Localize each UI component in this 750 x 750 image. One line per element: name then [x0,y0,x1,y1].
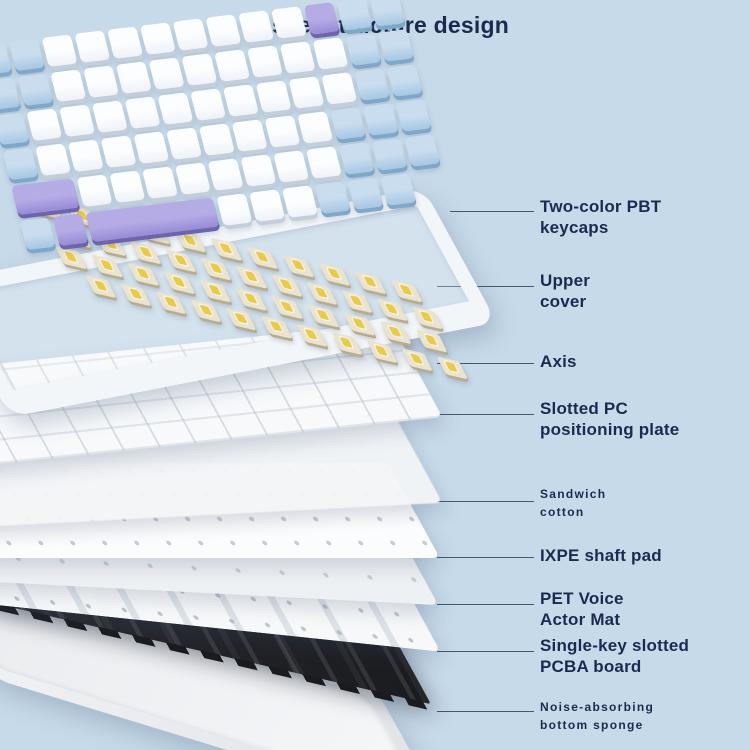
keycap [175,162,211,195]
keycap [387,64,423,97]
keycap [116,61,152,94]
label-pcba-board: Single-key slotted PCBA board [540,635,689,678]
keycap [378,29,414,62]
keycap [247,45,283,78]
keycap [0,112,30,145]
product-infographic: Gasket structure design Two-color PBT ke… [0,0,750,750]
switch [296,324,327,347]
keycap [50,69,86,102]
keycap [157,92,193,125]
switch [331,332,362,355]
keycap [109,170,145,203]
keycap [238,10,274,43]
label-axis: Axis [540,351,577,372]
label-text: Upper cover [540,271,590,311]
label-positioning-plate: Slotted PC positioning plate [540,398,679,441]
keycap [315,181,351,214]
keycap [125,96,161,129]
label-bottom-sponge: Noise-absorbing bottom sponge [540,698,654,734]
label-pet-voice-mat: PET Voice Actor Mat [540,588,624,631]
keycap [273,150,309,183]
switch [235,288,267,311]
keycap [42,34,78,67]
keycap [404,134,440,167]
keycap [306,146,342,179]
keycap [83,65,119,98]
switch [437,356,468,379]
keycap [345,33,381,66]
switch [190,299,221,322]
label-text: Single-key slotted PCBA board [540,636,689,676]
keycap [304,2,340,35]
keycap [363,103,399,136]
label-text: IXPE shaft pad [540,546,662,565]
keycap [240,154,276,187]
keycap [101,135,137,168]
keycap [214,49,250,82]
switch [271,274,302,297]
keycap [249,189,285,222]
switch [261,316,292,339]
keycap [142,166,178,199]
keycap [371,138,407,171]
pointer-line [437,414,534,415]
keycap [181,53,217,86]
keycap [280,41,316,74]
switch [379,321,411,344]
keycap [256,80,292,113]
switch [199,279,231,302]
keycap [339,142,375,175]
label-upper-cover: Upper cover [540,270,590,313]
keycap [140,22,176,55]
keycap [92,100,128,133]
keycap [11,178,80,215]
keycap [77,174,113,207]
switch [366,340,397,363]
switch [341,290,372,313]
keycap [232,119,268,152]
label-text: PET Voice Actor Mat [540,589,624,629]
keycap [18,73,54,106]
keycap [166,127,202,160]
label-text: Slotted PC positioning plate [540,399,679,439]
keycap [380,173,416,206]
label-text: Sandwich cotton [540,487,606,519]
keycap [312,37,348,70]
switch [155,291,186,314]
keycap [133,131,169,164]
keycap [223,84,259,117]
switch [376,298,407,321]
keycap [369,0,405,27]
keycap [282,185,318,218]
pointer-line [437,501,534,502]
keycap [271,6,307,39]
keycap [9,38,45,71]
keycap [35,143,71,176]
keycap [208,158,244,191]
switch [163,271,195,294]
keycap [288,76,324,109]
label-sandwich-cotton: Sandwich cotton [540,485,606,521]
keycap [354,68,390,101]
keycap [26,108,62,141]
keycap [149,57,185,90]
keycap [297,111,333,144]
keycap [74,30,110,63]
switch [236,266,267,289]
pointer-line [437,651,534,652]
keycap [173,18,209,51]
keycap [205,14,241,47]
switch [415,329,447,352]
keycap [336,0,372,31]
keycap [330,107,366,140]
keycap [53,213,89,246]
keycap [68,139,104,172]
switch [271,296,303,319]
keycap [347,177,383,210]
label-ixpe-shaft-pad: IXPE shaft pad [540,545,662,566]
switch [120,283,151,306]
switch [343,313,375,336]
keycap [190,88,226,121]
keycap [107,26,143,59]
label-text: Two-color PBT keycaps [540,197,661,237]
keycap [216,193,252,226]
switch [226,308,257,331]
keycap [59,104,95,137]
pointer-line [437,711,534,712]
keycap [321,72,357,105]
switch [85,275,116,298]
pointer-line [437,604,534,605]
keycap [2,147,38,180]
switch [306,282,337,305]
switch [307,304,339,327]
switch [201,258,232,281]
keycap [199,123,235,156]
keycap [264,115,300,148]
keycap [395,99,431,132]
keycap [0,77,21,110]
pointer-line [437,557,534,558]
label-keycaps: Two-color PBT keycaps [540,196,661,239]
label-text: Noise-absorbing bottom sponge [540,700,654,732]
keycap [20,217,56,250]
switch [401,348,432,371]
label-text: Axis [540,352,577,371]
